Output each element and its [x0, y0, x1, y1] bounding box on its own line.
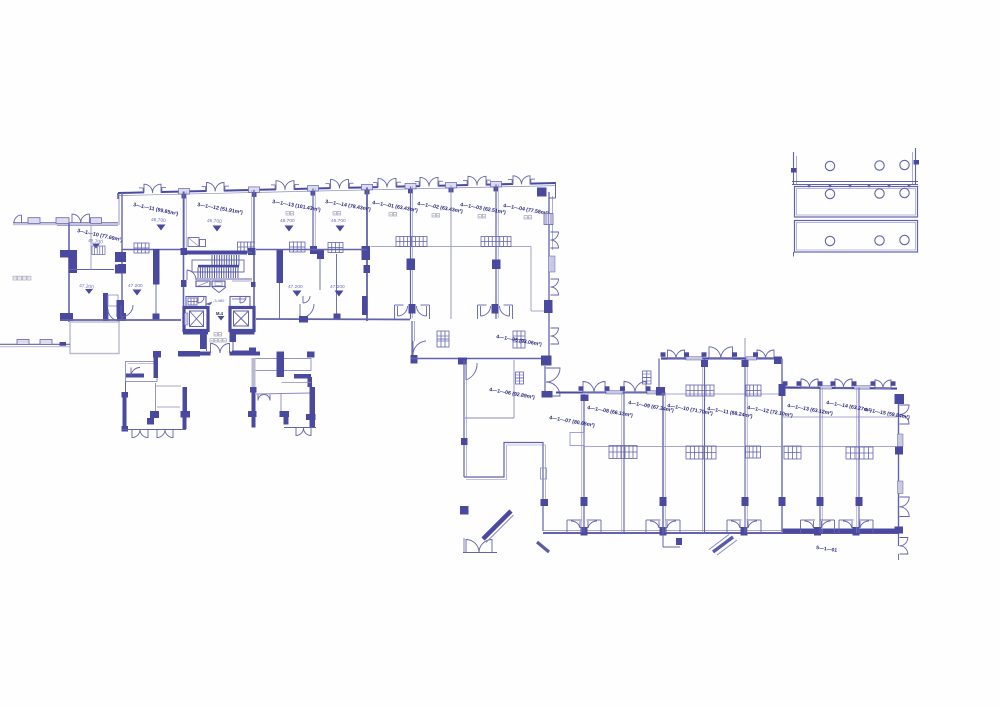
svg-text:46.700: 46.700 — [151, 217, 166, 224]
svg-text:M.4: M.4 — [216, 311, 224, 316]
svg-text:46.700: 46.700 — [207, 218, 222, 225]
svg-text:46.700: 46.700 — [331, 218, 346, 224]
svg-text:47.200: 47.200 — [330, 284, 345, 290]
svg-text:-3.480: -3.480 — [213, 298, 225, 303]
svg-text:47.200: 47.200 — [128, 283, 143, 289]
svg-text:47.200: 47.200 — [288, 284, 303, 290]
svg-text:46.700: 46.700 — [280, 218, 295, 224]
